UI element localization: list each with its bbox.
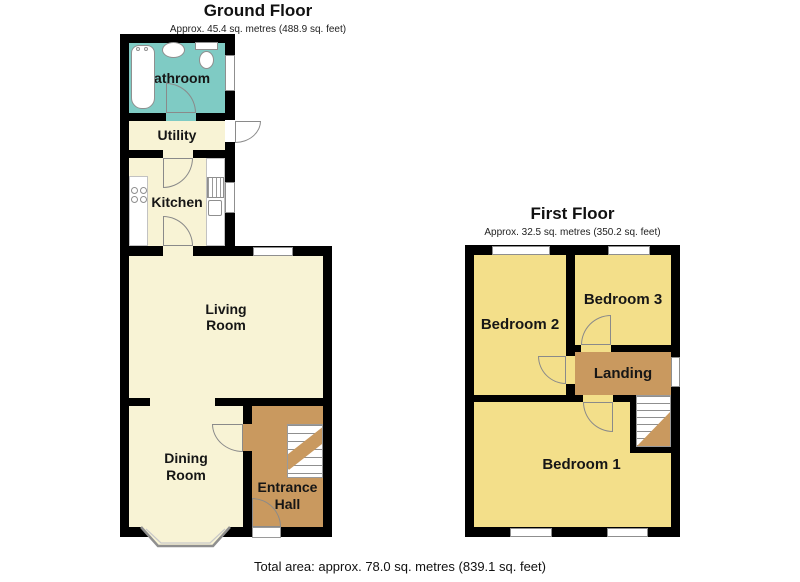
kitchen-sink-icon [208,200,222,216]
bathroom-window-icon [225,55,235,91]
stairs-bottom-wall [630,447,671,453]
first-floor-titleblock: First Floor Approx. 32.5 sq. metres (350… [450,205,695,238]
bathtub-icon [131,45,155,109]
ground-floor-title: Ground Floor [118,2,398,21]
front-door-threshold [252,527,281,538]
bedroom2-window-icon [492,246,550,255]
bay-window-icon [128,525,236,551]
first-floor-stairs-icon [636,395,671,447]
dining-hall-opening [243,424,252,451]
first-floor-title: First Floor [450,205,695,224]
bedroom3-door-opening [581,345,611,352]
first-floor-subtitle: Approx. 32.5 sq. metres (350.2 sq. feet) [450,227,695,238]
room-label-bedroom3: Bedroom 3 [584,291,662,308]
living-room-window-icon [253,247,293,256]
bedroom1-window-right-icon [607,528,648,537]
drainer-icon [207,177,224,198]
stove-burner-icon [140,196,147,203]
room-label-landing: Landing [594,365,652,382]
bedroom1-window-left-icon [510,528,552,537]
living-dining-archway [150,398,215,406]
room-label-bedroom1: Bedroom 1 [542,456,620,473]
bedroom2-door-opening [566,356,575,384]
room-label-living: Living Room [205,301,246,333]
utility-exterior-door-swing-icon [235,121,261,143]
stairs-break-line [287,425,323,470]
room-label-dining: Dining Room [164,450,208,482]
stove-burner-icon [140,187,147,194]
basin-icon [162,42,185,58]
bathtub-tap-icon [144,47,148,51]
stairs-break-line [637,396,670,446]
bathroom-door-opening [166,113,196,121]
room-utility: Utility [129,121,225,150]
landing-window-icon [671,357,680,387]
ground-floor-stairs-icon [287,424,323,478]
total-area-text: Total area: approx. 78.0 sq. metres (839… [0,559,800,574]
room-label-kitchen: Kitchen [151,194,202,210]
ground-floor-titleblock: Ground Floor Approx. 45.4 sq. metres (48… [118,2,398,35]
kitchen-living-opening [163,246,193,256]
toilet-cistern-icon [195,42,218,50]
stove-burner-icon [131,187,138,194]
utility-exterior-opening [225,120,235,142]
kitchen-window-icon [225,182,235,213]
bedroom1-door-opening [583,395,613,402]
toilet-bowl-icon [199,51,214,69]
room-label-bedroom2: Bedroom 2 [481,316,559,333]
floor-plan-canvas: Ground Floor Approx. 45.4 sq. metres (48… [0,0,800,582]
room-landing: Landing [575,352,671,395]
bathtub-tap-icon [136,47,140,51]
room-label-utility: Utility [158,127,197,143]
room-living: Living Room [129,256,323,398]
utility-kitchen-opening [163,150,193,158]
stove-burner-icon [131,196,138,203]
bedroom3-window-icon [608,246,650,255]
